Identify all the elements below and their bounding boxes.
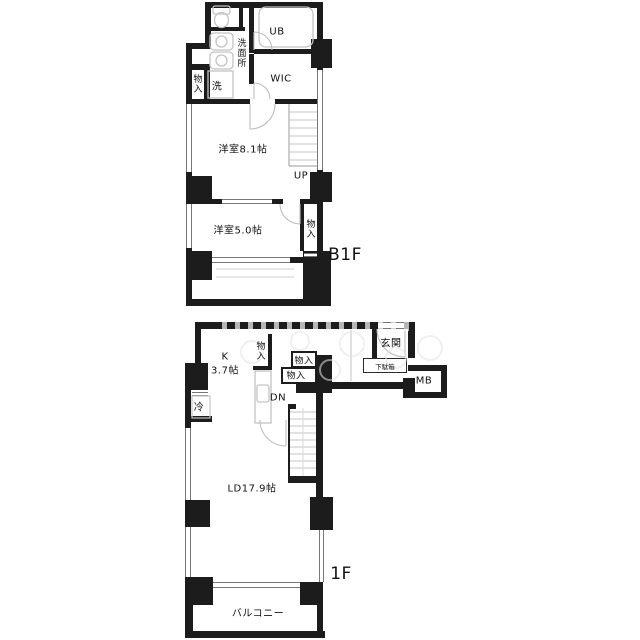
toilet-fixture	[213, 6, 230, 28]
label-ub: UB	[269, 27, 284, 38]
bathtub	[259, 7, 313, 47]
label-closet-hall-upper: 物入	[294, 354, 313, 367]
label-floor-1f: 1F	[330, 564, 352, 584]
label-wic: WIC	[270, 74, 291, 85]
label-stairs-up: UP	[294, 171, 308, 182]
label-closet-left: 物入	[191, 74, 204, 94]
label-meter-box: MB	[416, 376, 433, 387]
floorplan-image: UB 洗面所 WIC 物入 洗 洋室8.1帖 UP 洋室5.0帖 物入 B1F …	[0, 0, 640, 640]
kitchen-counter	[255, 371, 271, 423]
label-washroom: 洗面所	[235, 38, 248, 68]
label-shoe-cabinet: 下駄箱	[375, 361, 395, 371]
label-bedroom-8-1: 洋室8.1帖	[219, 141, 268, 156]
label-bedroom-5-0: 洋室5.0帖	[214, 222, 263, 237]
stairs-b1f	[289, 104, 317, 166]
watermark-strip	[222, 319, 414, 331]
label-closet-hall-lower: 物入	[286, 369, 305, 382]
label-entrance: 玄関	[381, 335, 402, 350]
label-floor-b1f: B1F	[328, 245, 362, 265]
terrace-grating	[216, 269, 294, 277]
vanity-sinks	[210, 33, 233, 69]
label-kitchen-size: 3.7帖	[211, 362, 239, 377]
label-stairs-down: DN	[270, 393, 286, 404]
label-closet-right: 物入	[304, 219, 317, 239]
label-washer: 洗	[212, 78, 223, 93]
label-refrigerator: 冷	[194, 399, 205, 414]
label-closet-kitchen: 物入	[254, 341, 267, 361]
label-balcony: バルコニー	[232, 605, 284, 620]
stairs-1f	[290, 408, 316, 476]
label-living-dining: LD17.9帖	[227, 480, 276, 495]
